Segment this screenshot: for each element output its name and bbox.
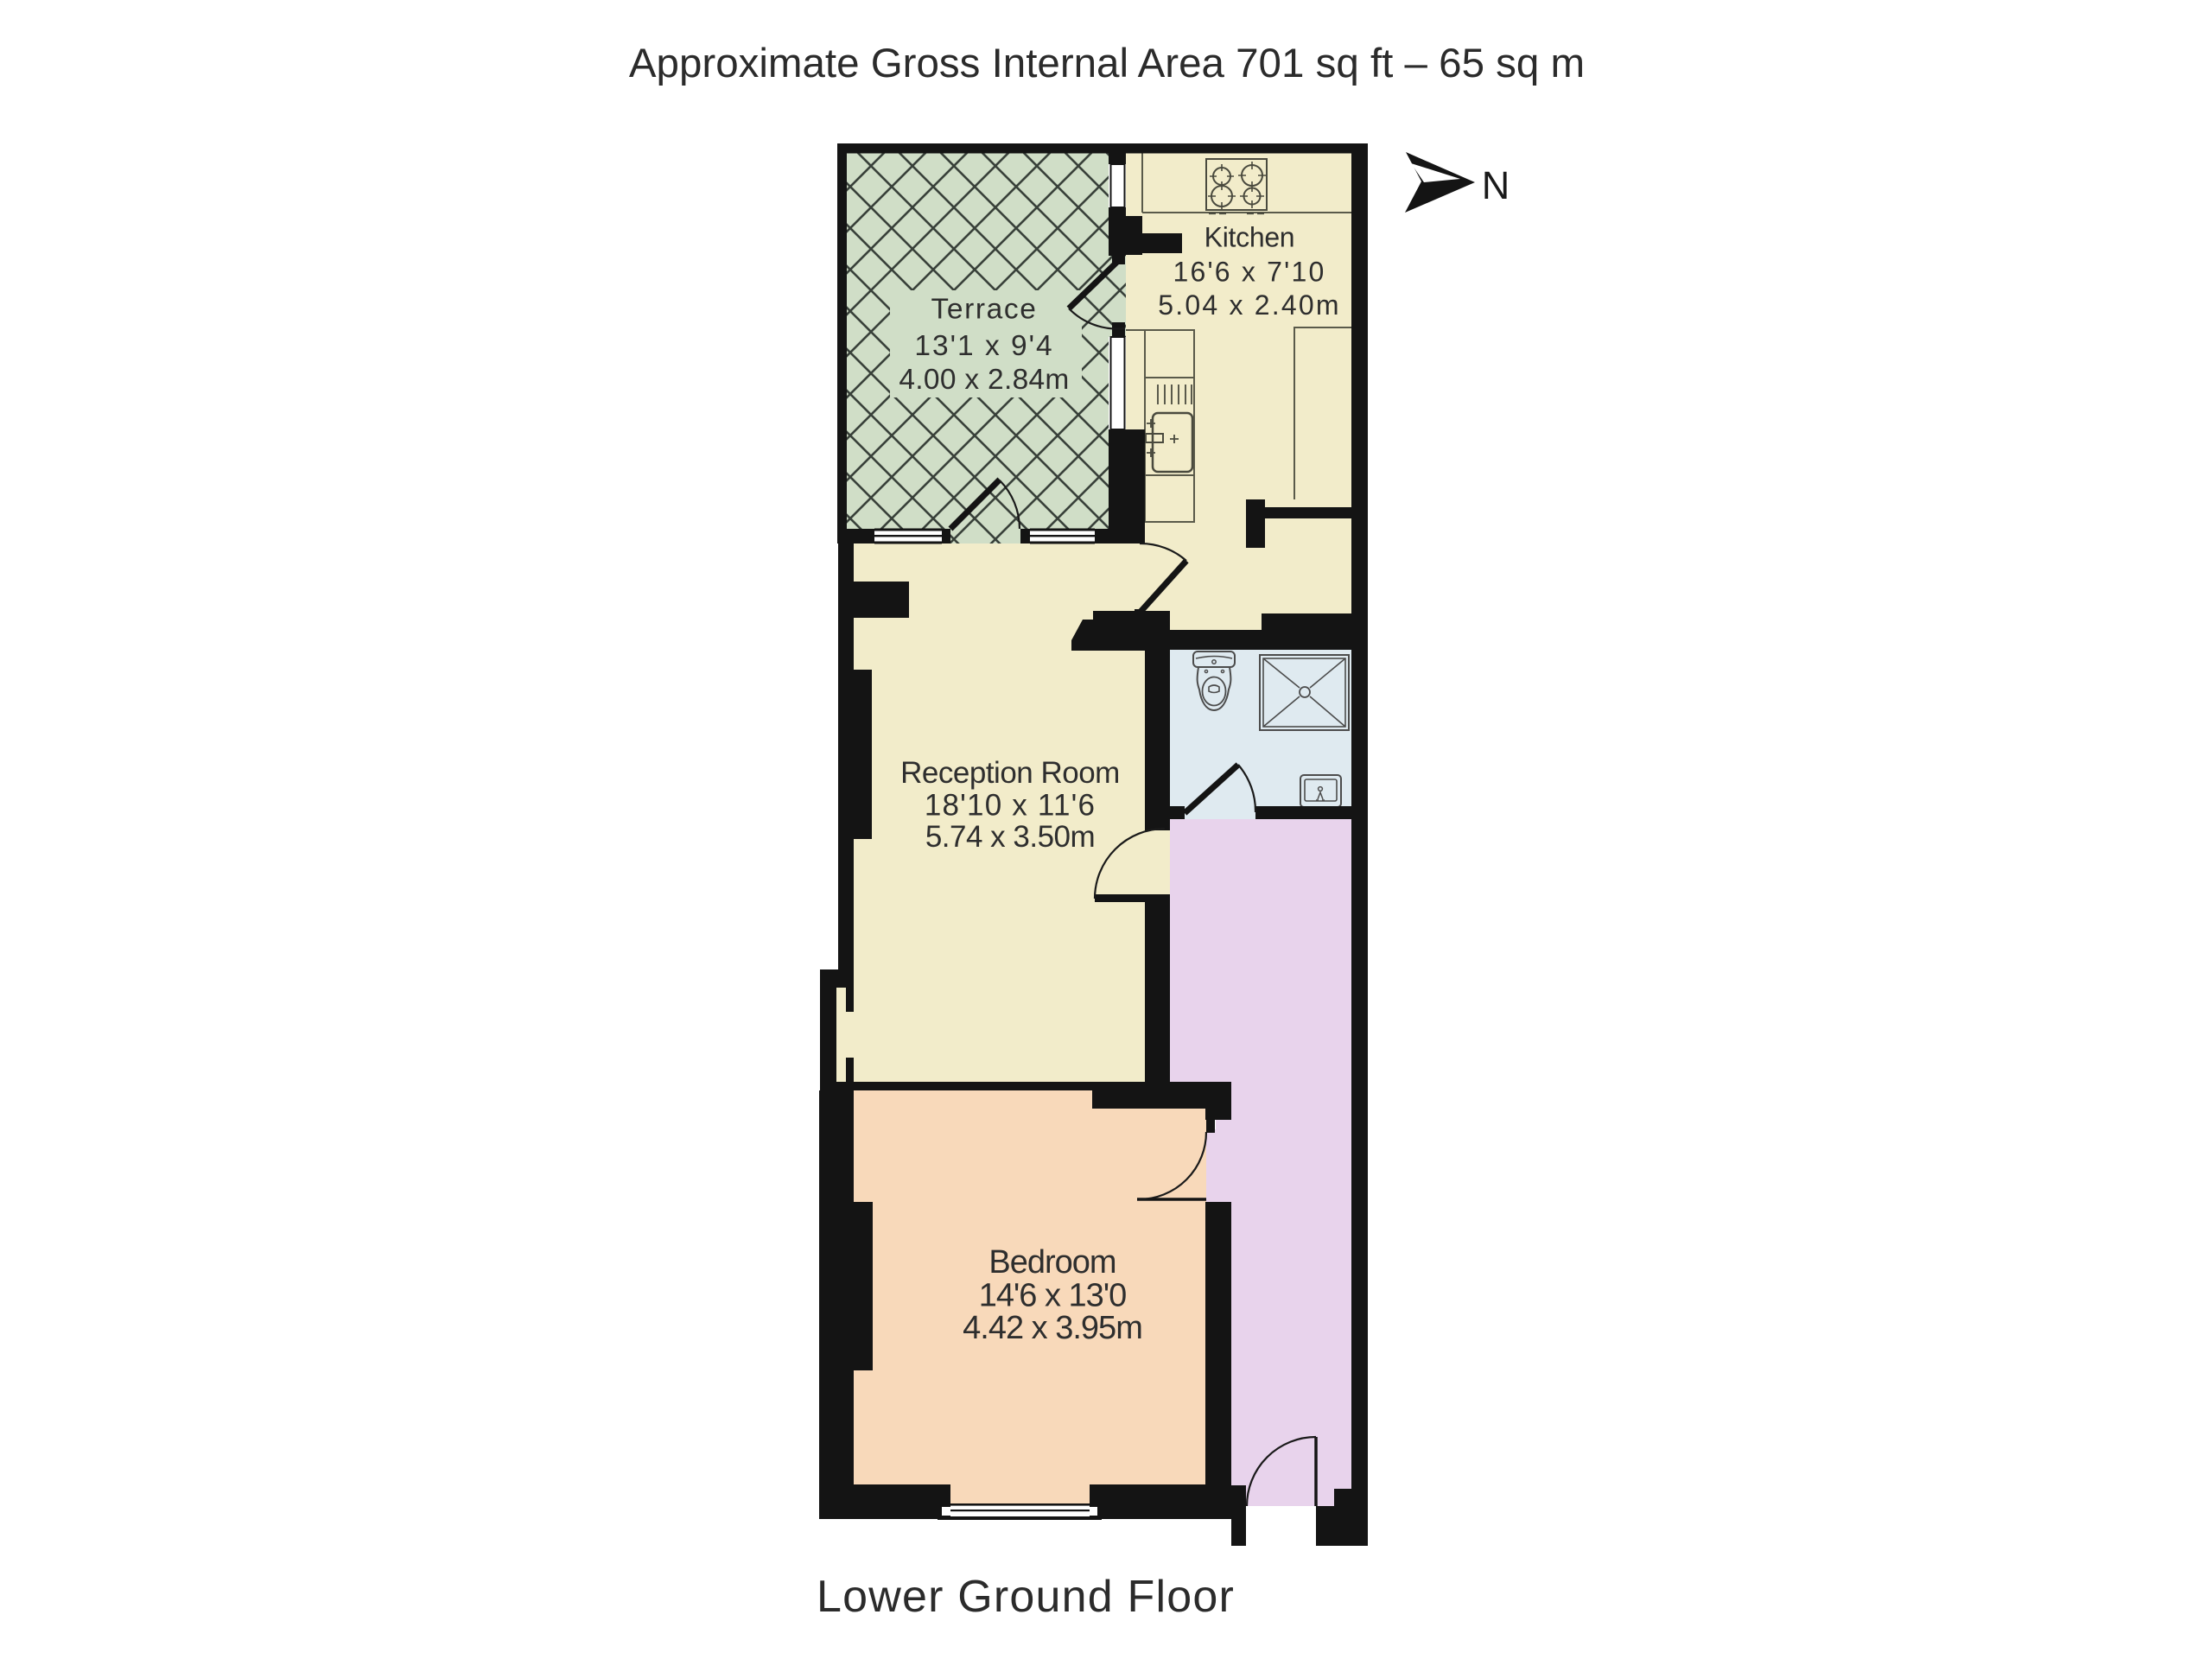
svg-text:4.00 x 2.84m: 4.00 x 2.84m: [899, 364, 1069, 396]
svg-text:14'6 x 13'0: 14'6 x 13'0: [979, 1278, 1126, 1314]
svg-text:13'1 x 9'4: 13'1 x 9'4: [914, 330, 1053, 362]
svg-text:Reception Room: Reception Room: [900, 756, 1120, 790]
svg-text:5.04 x 2.40m: 5.04 x 2.40m: [1158, 289, 1340, 321]
svg-text:Lower Ground Floor: Lower Ground Floor: [817, 1572, 1235, 1622]
svg-text:18'10 x 11'6: 18'10 x 11'6: [925, 789, 1096, 823]
svg-text:4.42 x 3.95m: 4.42 x 3.95m: [963, 1310, 1142, 1346]
svg-text:Terrace: Terrace: [931, 294, 1038, 326]
svg-text:5.74 x 3.50m: 5.74 x 3.50m: [925, 820, 1095, 854]
svg-text:Bedroom: Bedroom: [988, 1244, 1116, 1281]
svg-text:N: N: [1482, 163, 1510, 207]
svg-text:Approximate Gross Internal Are: Approximate Gross Internal Area 701 sq f…: [629, 41, 1585, 86]
svg-text:16'6 x 7'10: 16'6 x 7'10: [1173, 257, 1326, 288]
svg-text:Kitchen: Kitchen: [1205, 222, 1295, 253]
